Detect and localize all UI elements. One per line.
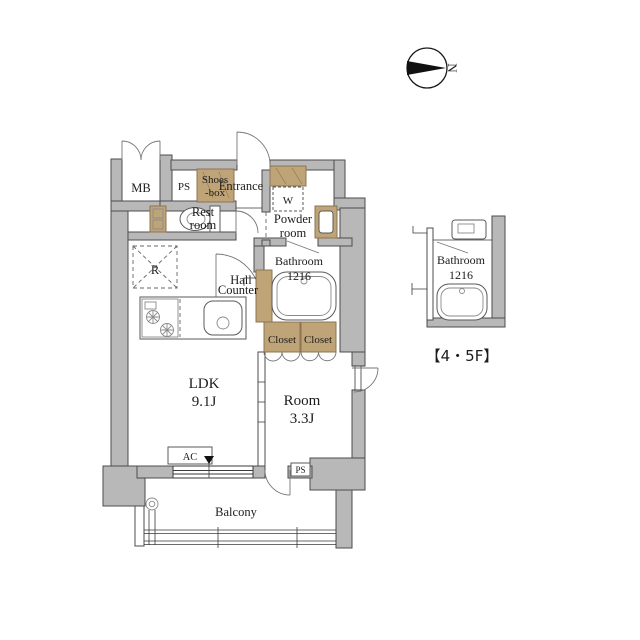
wall-segment xyxy=(340,208,365,352)
label-balcony: Balcony xyxy=(215,505,257,519)
compass: N xyxy=(407,48,460,88)
entrance-door-arc xyxy=(237,132,270,165)
burner-icon xyxy=(161,324,174,337)
balcony-side-wall xyxy=(135,506,144,546)
label-washer: W xyxy=(283,195,294,207)
floor-plan-canvas: N xyxy=(0,0,640,640)
burner-icon xyxy=(147,311,160,324)
label-ps-bottom: PS xyxy=(295,465,305,475)
wall-segment xyxy=(111,211,128,466)
inset-diagram: Bathroom 1216 【4・5F】 xyxy=(412,216,505,365)
label-refrigerator: R xyxy=(151,263,160,277)
counter-top xyxy=(256,270,272,322)
wall-segment xyxy=(318,238,352,246)
inset-label-floors: 【4・5F】 xyxy=(426,347,499,365)
wall-segment xyxy=(352,352,365,366)
inset-label-bathroom-1: Bathroom xyxy=(437,253,486,267)
wall-segment xyxy=(253,466,265,478)
closet-door-arcs xyxy=(264,352,336,361)
label-ac: AC xyxy=(183,452,198,463)
balcony-railing xyxy=(144,530,336,545)
wall-segment xyxy=(128,232,236,240)
compass-north-label: N xyxy=(445,63,460,73)
wall-segment xyxy=(310,458,365,490)
wall-segment xyxy=(352,390,365,466)
label-counter: Counter xyxy=(218,283,259,297)
label-bathroom-1: Bathroom xyxy=(275,254,324,268)
label-rest-room-1: Rest xyxy=(192,205,215,219)
mb-door-arcs xyxy=(122,141,160,160)
room-balcony-door-arc xyxy=(265,470,290,495)
floor-plan-page: N xyxy=(0,0,640,640)
inset-wall-left xyxy=(427,228,433,320)
label-ldk-2: 9.1J xyxy=(192,394,217,410)
wall-segment xyxy=(137,466,173,478)
restroom-cabinet xyxy=(150,206,166,232)
inset-label-bathroom-2: 1216 xyxy=(449,268,473,282)
label-room-1: Room xyxy=(284,393,321,409)
label-powder-room-2: room xyxy=(280,226,307,240)
inset-bathroom-door xyxy=(437,242,468,253)
kitchen-sink xyxy=(204,301,242,335)
washer-shelf xyxy=(270,166,306,186)
wall-segment xyxy=(336,490,352,548)
label-entrance: Entrance xyxy=(219,179,264,193)
inset-pipe-stub xyxy=(412,283,427,295)
bathroom-door xyxy=(287,241,319,253)
label-ps-top: PS xyxy=(178,181,190,193)
inset-wall-right xyxy=(492,216,505,324)
restroom-door-arc xyxy=(236,211,258,233)
inset-wall-stub-top xyxy=(413,226,427,233)
label-rest-room-2: room xyxy=(190,218,217,232)
room-window xyxy=(352,366,365,390)
inset-fixture xyxy=(452,220,486,239)
sliding-partition xyxy=(258,352,265,466)
ldk-balcony-window xyxy=(173,466,253,478)
balcony-drain xyxy=(146,498,158,545)
label-room-2: 3.3J xyxy=(290,411,315,427)
powder-vanity-sink xyxy=(319,211,333,233)
wall-segment xyxy=(262,240,270,246)
label-bathroom-2: 1216 xyxy=(287,269,311,283)
label-mb: MB xyxy=(131,181,150,195)
label-ldk-1: LDK xyxy=(189,376,220,392)
label-closet-right: Closet xyxy=(304,334,332,346)
label-closet-left: Closet xyxy=(268,334,296,346)
label-powder-room-1: Powder xyxy=(274,212,313,226)
room-window-arc xyxy=(352,368,378,392)
